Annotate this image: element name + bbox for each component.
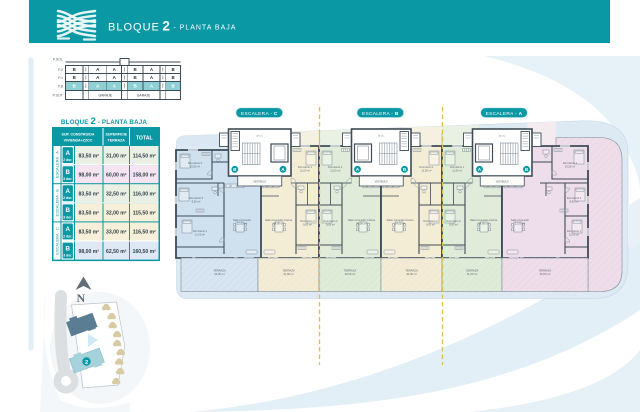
- svg-text:24,00 m²: 24,00 m²: [478, 221, 488, 225]
- svg-text:VESTIBULO: VESTIBULO: [496, 182, 509, 184]
- svg-text:2 dor.: 2 dor.: [63, 196, 72, 200]
- svg-text:114,50 m²: 114,50 m²: [133, 153, 156, 159]
- svg-text:2: 2: [85, 360, 88, 366]
- svg-text:32,00 m²: 32,00 m²: [106, 211, 127, 217]
- svg-text:116,00 m²: 116,00 m²: [133, 191, 156, 197]
- svg-text:B: B: [66, 245, 71, 252]
- svg-text:31,00 m²: 31,00 m²: [283, 272, 294, 276]
- svg-text:24,00 m²: 24,00 m²: [356, 221, 366, 225]
- svg-text:60,00 m²: 60,00 m²: [106, 172, 127, 178]
- svg-text:11,50 m²: 11,50 m²: [330, 168, 340, 172]
- svg-text:VIVIENDA+ZZCC: VIVIENDA+ZZCC: [64, 139, 93, 143]
- svg-text:11,50 m²: 11,50 m²: [421, 168, 431, 172]
- svg-text:9,00 m²: 9,00 m²: [449, 222, 458, 226]
- svg-text:SUPERFICIE: SUPERFICIE: [105, 133, 127, 137]
- svg-text:10,50 m²: 10,50 m²: [565, 164, 575, 168]
- svg-text:ESCALERA - C: ESCALERA - C: [54, 227, 59, 255]
- svg-text:98,00 m²: 98,00 m²: [79, 249, 100, 255]
- svg-text:83,50 m²: 83,50 m²: [79, 230, 100, 236]
- svg-text:31,00 m²: 31,00 m²: [467, 272, 478, 276]
- svg-text:TERRAZA: TERRAZA: [213, 269, 226, 273]
- svg-text:ZZ.CC.: ZZ.CC.: [256, 136, 263, 138]
- svg-text:ESCALERA - B: ESCALERA - B: [362, 111, 399, 117]
- svg-text:22,00 m²: 22,00 m²: [237, 221, 247, 225]
- svg-text:33,00 m²: 33,00 m²: [214, 272, 225, 276]
- svg-text:33,00 m²: 33,00 m²: [106, 230, 127, 236]
- svg-text:9,00 m²: 9,00 m²: [426, 222, 435, 226]
- svg-text:11,00 m²: 11,00 m²: [195, 232, 205, 236]
- svg-text:158,00 m²: 158,00 m²: [133, 172, 157, 178]
- svg-text:160,50 m²: 160,50 m²: [133, 249, 157, 255]
- svg-text:ZZ.CC.: ZZ.CC.: [499, 136, 506, 138]
- svg-text:24,00 m²: 24,00 m²: [395, 221, 405, 225]
- svg-text:98,00 m²: 98,00 m²: [79, 172, 100, 178]
- svg-text:B: B: [66, 207, 71, 214]
- svg-text:22,00 m²: 22,00 m²: [515, 221, 525, 225]
- svg-text:ZZ.CC.: ZZ.CC.: [378, 136, 385, 138]
- svg-text:P.SOL: P.SOL: [53, 58, 63, 62]
- svg-text:9,00 m²: 9,00 m²: [303, 222, 312, 226]
- svg-text:32,50 m²: 32,50 m²: [345, 272, 356, 276]
- svg-text:P.1: P.1: [58, 76, 63, 80]
- svg-text:24,00 m²: 24,00 m²: [273, 221, 283, 225]
- svg-text:83,50 m²: 83,50 m²: [79, 211, 100, 217]
- svg-text:3 dor.: 3 dor.: [63, 177, 72, 181]
- svg-text:GARAJE: GARAJE: [99, 94, 113, 98]
- svg-text:60,00 m²: 60,00 m²: [540, 272, 551, 276]
- svg-text:TOTAL: TOTAL: [136, 136, 154, 142]
- svg-text:P.B: P.B: [58, 85, 64, 89]
- svg-text:ESCALERA - C: ESCALERA - C: [241, 111, 278, 117]
- svg-text:TERRAZA: TERRAZA: [108, 139, 126, 143]
- svg-text:P.2: P.2: [58, 68, 63, 72]
- svg-text:A: A: [66, 188, 71, 195]
- svg-text:10,50 m²: 10,50 m²: [190, 164, 200, 168]
- svg-text:TERRAZA: TERRAZA: [405, 269, 418, 273]
- svg-text:32,00 m²: 32,00 m²: [406, 272, 417, 276]
- svg-text:VESTIBULO: VESTIBULO: [375, 182, 388, 184]
- svg-text:SUP. CONSTRUIDA: SUP. CONSTRUIDA: [62, 133, 95, 137]
- svg-text:83,50 m²: 83,50 m²: [79, 191, 100, 197]
- svg-text:3 dor.: 3 dor.: [63, 215, 72, 219]
- svg-text:TERRAZA: TERRAZA: [539, 269, 552, 273]
- svg-text:116,50 m²: 116,50 m²: [133, 230, 156, 236]
- svg-text:11,50 m²: 11,50 m²: [452, 168, 462, 172]
- svg-text:3 dor.: 3 dor.: [63, 254, 72, 258]
- svg-text:N: N: [77, 291, 86, 305]
- svg-text:B: B: [66, 169, 71, 176]
- svg-text:62,50 m²: 62,50 m²: [106, 249, 127, 255]
- svg-text:11,00 m²: 11,00 m²: [569, 232, 579, 236]
- svg-text:2 dor.: 2 dor.: [63, 158, 72, 162]
- svg-text:ESCALERA - A: ESCALERA - A: [54, 151, 59, 178]
- svg-text:11,50 m²: 11,50 m²: [300, 168, 310, 172]
- svg-text:31,00 m²: 31,00 m²: [106, 153, 127, 159]
- svg-text:TERRAZA: TERRAZA: [344, 269, 357, 273]
- svg-text:2 dor.: 2 dor.: [63, 234, 72, 238]
- svg-text:A: A: [66, 226, 71, 233]
- svg-text:8,50 m²: 8,50 m²: [192, 199, 201, 203]
- svg-text:VESTIBULO: VESTIBULO: [253, 182, 266, 184]
- svg-text:P.SOT: P.SOT: [53, 94, 64, 98]
- svg-text:ESCALERA - A: ESCALERA - A: [486, 111, 523, 117]
- svg-text:115,50 m²: 115,50 m²: [133, 211, 156, 217]
- svg-text:9,00 m²: 9,00 m²: [326, 222, 335, 226]
- svg-text:TERRAZA: TERRAZA: [282, 269, 295, 273]
- svg-text:83,50 m²: 83,50 m²: [79, 153, 100, 159]
- svg-text:GARAJE: GARAJE: [137, 94, 151, 98]
- svg-text:A: A: [66, 150, 71, 157]
- svg-text:8,50 m²: 8,50 m²: [570, 199, 579, 203]
- svg-text:ESCALERA - B: ESCALERA - B: [54, 189, 59, 217]
- svg-text:32,50 m²: 32,50 m²: [106, 191, 127, 197]
- svg-text:TERRAZA: TERRAZA: [466, 269, 479, 273]
